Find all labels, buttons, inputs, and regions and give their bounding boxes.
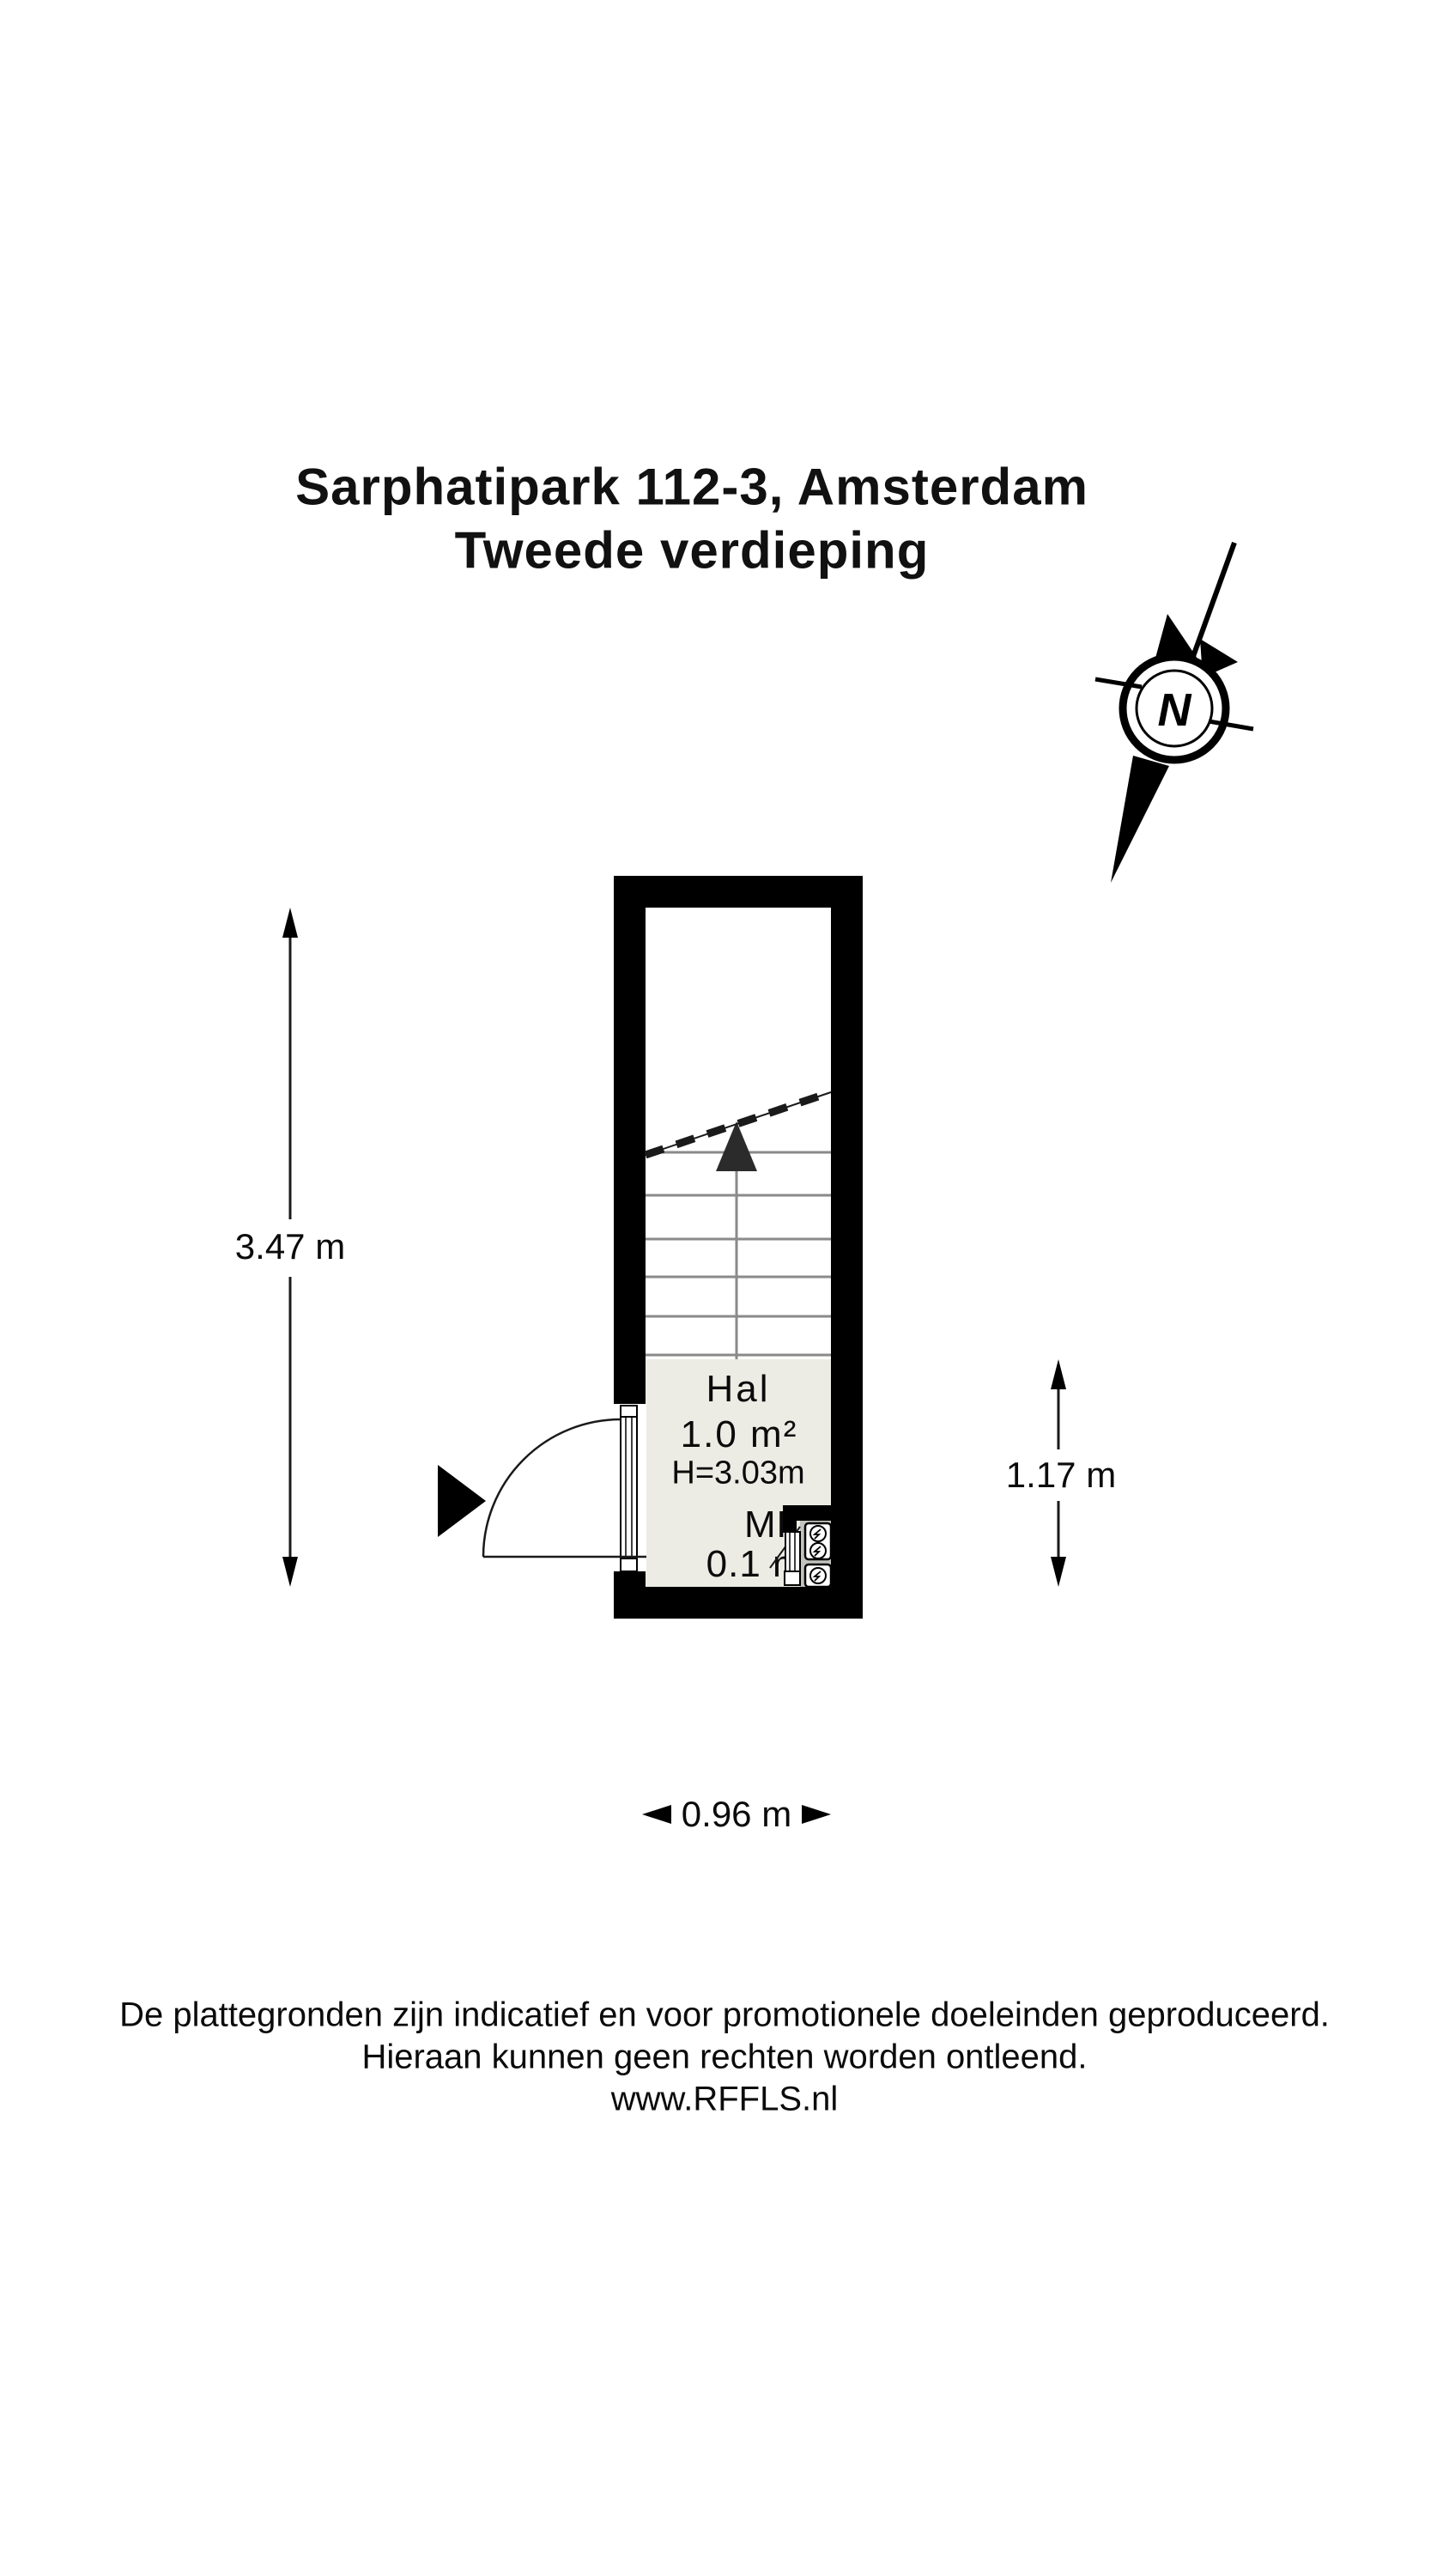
disclaimer-line1: De plattegronden zijn indicatief en voor… [119,1996,1330,2035]
disclaimer-line2: Hieraan kunnen geen rechten worden ontle… [361,2038,1087,2077]
entrance-door-swing-arc [483,1419,621,1557]
dimension-label-bottom: 0.96 m [682,1794,791,1835]
dimension-arrow-down-icon [282,1557,298,1587]
compass-north-icon: N [1095,543,1253,883]
website-url: www.RFFLS.nl [611,2081,839,2119]
floorplan-drawing: N [0,0,1449,2576]
room-label-hal: Hal [706,1368,770,1411]
dimension-label-right: 1.17 m [1003,1455,1119,1496]
dimension-arrow-left-icon [642,1805,671,1824]
compass-north-label: N [1158,684,1192,736]
dimension-arrow-down-icon [1051,1557,1066,1587]
door-frame-bottom [621,1558,637,1571]
entrance-door-leaf [621,1417,637,1558]
compass-south-tail [1111,756,1169,883]
room-label-mk: MK [744,1504,803,1546]
dimension-arrow-up-icon [282,908,298,938]
dimension-arrow-up-icon [1051,1359,1066,1389]
dimension-label-left: 3.47 m [232,1226,349,1267]
room-area-hal: 1.0 m² [681,1413,798,1456]
entrance-arrow-icon [438,1465,486,1537]
dimension-arrow-right-icon [802,1805,831,1824]
room-height-hal: H=3.03m [671,1455,804,1492]
page-subtitle: Tweede verdieping [455,521,930,580]
page-title: Sarphatipark 112-3, Amsterdam [295,458,1088,517]
door-frame-top [621,1406,637,1417]
room-area-mk: 0.1 m² [706,1543,819,1586]
floorplan-page: N Sarphatipark 112-3, Amsterdam Tweede v… [0,0,1449,2576]
